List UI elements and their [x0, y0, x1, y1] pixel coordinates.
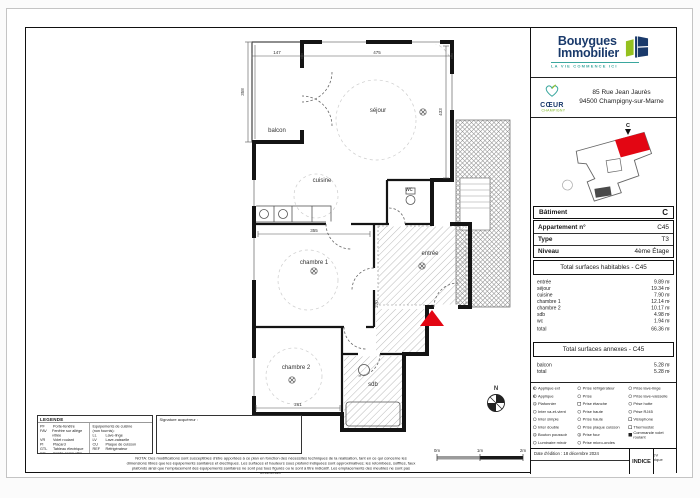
room-label-sejour: séjour	[370, 108, 386, 114]
site-plan-marker-arrow	[625, 129, 631, 135]
legend-item: Prise hotte	[628, 400, 674, 408]
scale-label-1: 1m	[477, 448, 484, 453]
dim-corridor-height: 270	[374, 300, 379, 308]
address-section: CŒUR CHAMPIGNY 85 Rue Jean Jaurès 94500 …	[531, 78, 676, 118]
dim-chambre1-width: 355	[310, 228, 318, 233]
scale-label-0: 0m	[434, 448, 441, 453]
corridor-hatch	[376, 309, 425, 352]
legend-item: Prise plaque cuisson	[578, 423, 629, 431]
ceiling-light-icon	[533, 402, 537, 406]
developer-logo-section: Bouygues Immobilier LA VIE COMMENCE ICI	[531, 28, 676, 78]
legend-item: Prise	[578, 392, 629, 400]
legend-item: Plafonnier	[533, 400, 578, 408]
switch-double-icon	[533, 425, 537, 429]
socket-dishwasher-icon	[628, 394, 632, 398]
legende-item: FAVFenêtre sur allège vitrée	[40, 429, 90, 438]
indice-cell: INDICE	[629, 449, 653, 474]
surfaces-habitables-title: Total surfaces habitables - C45	[533, 260, 674, 275]
footer-divider	[531, 460, 629, 461]
legend-item: Prise étanche	[578, 400, 629, 408]
type-row: Type T3	[534, 233, 673, 245]
push-button-icon	[533, 433, 537, 437]
program-name-line1: CŒUR	[531, 102, 573, 109]
room-label-cuisine: cuisine	[313, 178, 332, 184]
legende-kitchen: Equipements de cuisine (non fournis): LL…	[90, 423, 153, 454]
legend-item: Bouton poussoir	[533, 431, 578, 439]
room-label-sdb: sdb	[368, 382, 378, 388]
dim-right-height: 433	[438, 108, 443, 116]
surfaces-annexes-title: Total surfaces annexes - C45	[533, 342, 674, 357]
legend-item: Applique	[533, 392, 578, 400]
mirror-light-icon	[533, 441, 537, 445]
socket-high-icon	[578, 418, 582, 422]
site-plan-map: C	[531, 118, 677, 204]
coeur-champigny-logo: CŒUR CHAMPIGNY	[531, 82, 573, 114]
plan-frame: 147 475 358 433 355 261 270 balcon séjou…	[25, 27, 677, 473]
legend-item: Inter double	[533, 423, 578, 431]
legend-item: Visiophone	[628, 416, 674, 424]
legende-abbreviations: PFPorte-fenêtre FAVFenêtre sur allège vi…	[38, 423, 90, 454]
legend-item: Prise four	[578, 431, 629, 439]
videophone-icon	[628, 418, 632, 422]
room-label-balcon: balcon	[268, 128, 286, 134]
edition-date: Date d'édition : 18 décembre 2024	[534, 451, 629, 459]
socket-waterproof-icon	[578, 402, 582, 406]
type-value: T3	[662, 236, 669, 243]
title-block: Bouygues Immobilier LA VIE COMMENCE ICI	[530, 28, 676, 474]
type-label: Type	[538, 236, 552, 243]
nota-block: NOTA: Des modifications sont susceptible…	[126, 456, 416, 474]
document-sheet: 147 475 358 433 355 261 270 balcon séjou…	[6, 8, 693, 478]
balcon-outline	[252, 42, 302, 142]
pdv-cell: PDV technique	[653, 449, 677, 474]
legend-item: Prise réfrigérateur	[578, 385, 629, 393]
socket-hob-icon	[578, 425, 582, 429]
socket-fridge-icon	[578, 387, 582, 391]
room-label-chambre1: chambre 1	[300, 260, 329, 266]
shutter-control-icon	[628, 433, 632, 437]
heart-icon	[543, 84, 561, 97]
site-plan-marker-label: C	[626, 123, 630, 129]
legend-item: Inter simple	[533, 416, 578, 424]
legende-box: LEGENDE PFPorte-fenêtre FAVFenêtre sur a…	[37, 415, 153, 454]
appartement-value: C45	[657, 224, 669, 231]
electric-legend-col2: Prise réfrigérateur Prise Prise étanche …	[578, 385, 629, 449]
scale-label-2: 2m	[520, 448, 527, 453]
legend-item: Prise haute	[578, 416, 629, 424]
site-plan-section: C	[531, 118, 676, 204]
room-label-chambre2: chambre 2	[282, 365, 311, 371]
socket-rj45-icon	[628, 410, 632, 414]
socket-washer-icon	[628, 387, 632, 391]
surfaces-habitables-list: entrée9.89 m² séjour19.34 m² cuisine7.90…	[537, 279, 670, 337]
socket-oven-icon	[578, 433, 582, 437]
niveau-label: Niveau	[538, 248, 559, 255]
scale-bar	[437, 454, 523, 461]
floor-plan-drawing: 147 475 358 433 355 261 270 balcon séjou…	[26, 28, 532, 474]
dim-sejour-width: 475	[373, 50, 381, 55]
address-line1: 85 Rue Jean Jaurès	[573, 89, 670, 98]
surfaces-annexes-list: balcon5.28 m² total5.28 m²	[537, 362, 670, 378]
legende-item: GCGarde-corps vitré	[40, 451, 90, 454]
legend-item: Commande volet roulant	[628, 431, 674, 439]
north-label: N	[494, 386, 498, 392]
legend-item: Luminaire miroir	[533, 439, 578, 447]
wall-light-ext-icon	[533, 387, 537, 391]
appartement-label: Appartement n°	[538, 224, 586, 231]
tree-icon	[562, 179, 573, 190]
nota-text: NOTA: Des modifications sont susceptible…	[126, 456, 416, 474]
legend-item: Applique ext	[533, 385, 578, 393]
entree-hatch	[378, 226, 466, 305]
apartment-info-box: Appartement n° C45 Type T3 Niveau 4ème É…	[533, 220, 674, 258]
surface-total-row: total66.36 m²	[537, 326, 670, 333]
wall-light-icon	[533, 394, 537, 398]
legend-item: Prise lave-linge	[628, 385, 674, 393]
switch-two-way-icon	[533, 410, 537, 414]
sdb-hatch	[344, 356, 402, 428]
signature-label: Signature acquéreur :	[157, 416, 302, 424]
floor-plan: 147 475 358 433 355 261 270 balcon séjou…	[26, 28, 532, 474]
legend-item: Prise haute	[578, 408, 629, 416]
thermostat-icon	[628, 425, 632, 429]
signature-box: Signature acquéreur :	[156, 415, 302, 454]
socket-hood-icon	[628, 402, 632, 406]
niveau-row: Niveau 4ème Étage	[534, 245, 673, 257]
legend-item: Prise lave-vaisselle	[628, 392, 674, 400]
legende-item: REFRéfrigérateur	[93, 447, 154, 452]
electric-legend: Applique ext Applique Plafonnier Inter v…	[531, 382, 676, 448]
legend-item: Prise RJ45	[628, 408, 674, 416]
program-name-line2: CHAMPIGNY	[542, 109, 563, 113]
legend-item: Prise micro-ondes	[578, 439, 629, 447]
socket-microwave-icon	[578, 441, 582, 445]
dim-balcon-width: 147	[273, 50, 281, 55]
surface-row: wc1.94 m²	[537, 318, 670, 325]
switch-single-icon	[533, 418, 537, 422]
title-block-footer: Date d'édition : 18 décembre 2024 INDICE…	[531, 448, 676, 474]
address-line2: 94500 Champigny-sur-Marne	[573, 98, 670, 107]
electric-legend-col3: Prise lave-linge Prise lave-vaisselle Pr…	[628, 385, 674, 449]
developer-tagline: LA VIE COMMENCE ICI	[551, 63, 639, 69]
electric-legend-col1: Applique ext Applique Plafonnier Inter v…	[533, 385, 578, 449]
room-label-wc: wc	[404, 187, 412, 193]
socket-high-icon	[578, 410, 582, 414]
developer-name-line2: Immobilier	[558, 47, 619, 59]
tagline-wrap: LA VIE COMMENCE ICI	[551, 62, 639, 72]
project-address: 85 Rue Jean Jaurès 94500 Champigny-sur-M…	[573, 89, 676, 106]
batiment-row: Bâtiment C	[533, 206, 674, 219]
building-core	[606, 159, 622, 173]
legend-item: Inter va-et-vient	[533, 408, 578, 416]
room-label-entree: entrée	[421, 251, 439, 257]
socket-icon	[578, 394, 582, 398]
niveau-value: 4ème Étage	[635, 248, 669, 255]
batiment-label: Bâtiment	[539, 209, 567, 216]
batiment-value: C	[662, 208, 668, 217]
dim-left-height: 358	[240, 88, 245, 96]
developer-name: Bouygues Immobilier	[558, 35, 619, 59]
kitchen-counter	[255, 206, 331, 222]
bouygues-logo-icon	[624, 34, 649, 60]
surface-total-row: total5.28 m²	[537, 369, 670, 376]
appartement-row: Appartement n° C45	[534, 221, 673, 233]
dim-chambre2-width: 261	[294, 402, 302, 407]
north-compass-icon	[488, 395, 505, 412]
legende-title: LEGENDE	[38, 416, 153, 423]
apartment-info-section: Bâtiment C Appartement n° C45 Type T3 Ni…	[531, 204, 676, 258]
